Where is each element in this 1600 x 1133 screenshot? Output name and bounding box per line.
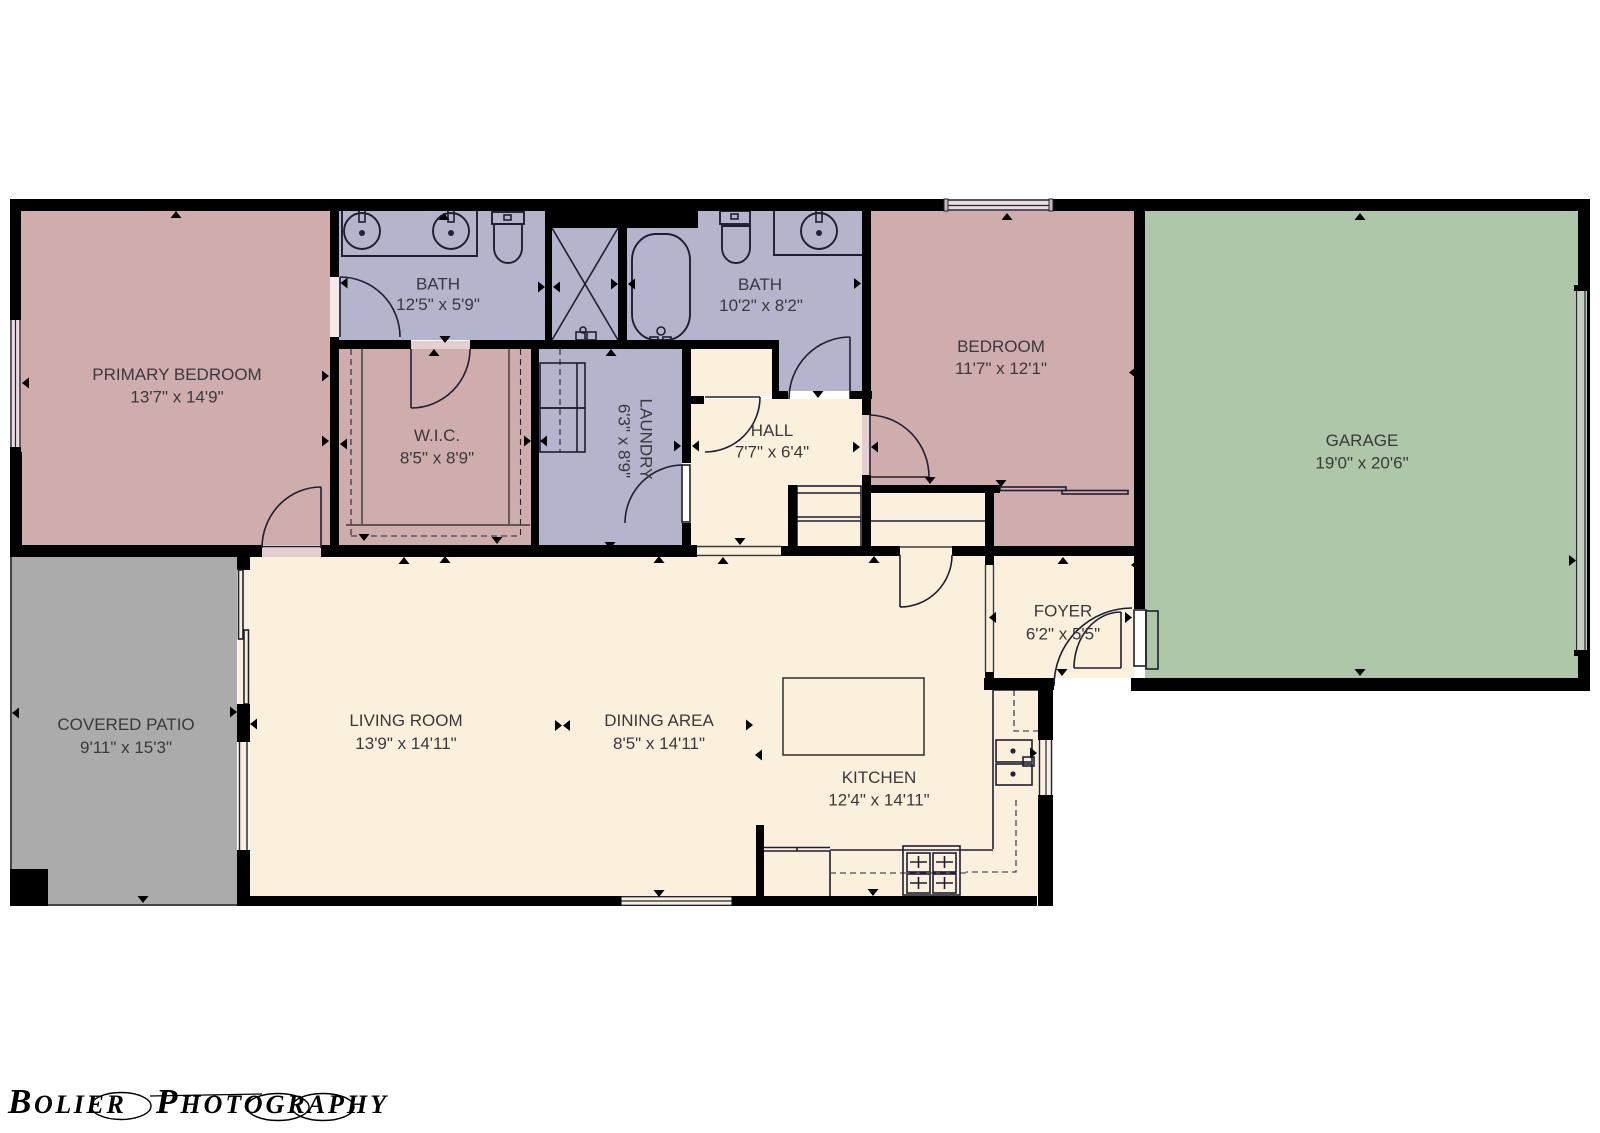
svg-text:13'9" x 14'11": 13'9" x 14'11" [355, 734, 456, 753]
svg-text:11'7" x 12'1": 11'7" x 12'1" [955, 359, 1047, 378]
svg-text:W.I.C.: W.I.C. [414, 426, 460, 445]
svg-text:BATH: BATH [416, 275, 460, 294]
svg-text:GARAGE: GARAGE [1326, 431, 1399, 450]
svg-text:LIVING ROOM: LIVING ROOM [349, 711, 462, 730]
svg-text:KITCHEN: KITCHEN [842, 768, 917, 787]
svg-text:LAUNDRY: LAUNDRY [637, 399, 656, 480]
svg-text:19'0" x 20'6": 19'0" x 20'6" [1315, 454, 1408, 473]
svg-text:FOYER: FOYER [1034, 602, 1093, 621]
svg-text:PRIMARY BEDROOM: PRIMARY BEDROOM [92, 365, 261, 384]
svg-text:BEDROOM: BEDROOM [957, 337, 1045, 356]
svg-text:7'7" x 6'4": 7'7" x 6'4" [735, 443, 809, 462]
svg-text:9'11" x 15'3": 9'11" x 15'3" [80, 738, 172, 757]
svg-text:BATH: BATH [738, 275, 782, 294]
svg-text:8'5" x 14'11": 8'5" x 14'11" [613, 734, 705, 753]
svg-text:COVERED PATIO: COVERED PATIO [57, 715, 194, 734]
svg-text:6'2" x 5'5": 6'2" x 5'5" [1026, 625, 1100, 644]
svg-text:6'3" x 8'9": 6'3" x 8'9" [615, 404, 634, 478]
svg-text:8'5" x 8'9": 8'5" x 8'9" [400, 449, 474, 468]
svg-text:10'2" x 8'2": 10'2" x 8'2" [719, 296, 803, 315]
svg-text:12'4" x 14'11": 12'4" x 14'11" [828, 791, 929, 810]
svg-text:12'5" x 5'9": 12'5" x 5'9" [396, 295, 480, 314]
svg-text:DINING AREA: DINING AREA [604, 711, 714, 730]
svg-text:HALL: HALL [751, 421, 794, 440]
svg-text:13'7" x 14'9": 13'7" x 14'9" [130, 388, 223, 407]
